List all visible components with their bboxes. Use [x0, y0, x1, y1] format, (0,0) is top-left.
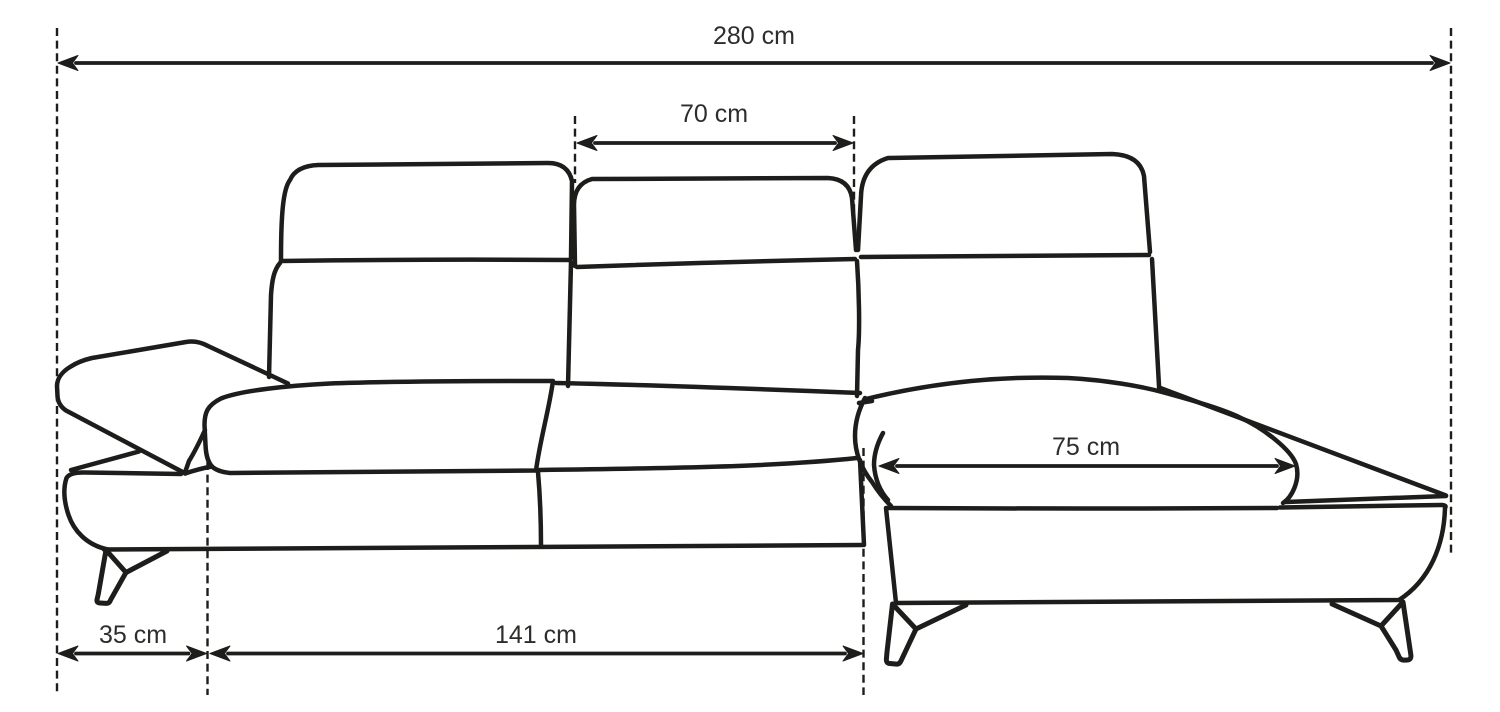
svg-text:35 cm: 35 cm: [99, 621, 167, 649]
svg-text:70 cm: 70 cm: [680, 100, 748, 128]
svg-text:75 cm: 75 cm: [1052, 433, 1120, 461]
svg-text:280 cm: 280 cm: [713, 22, 795, 50]
svg-text:141 cm: 141 cm: [495, 621, 577, 649]
